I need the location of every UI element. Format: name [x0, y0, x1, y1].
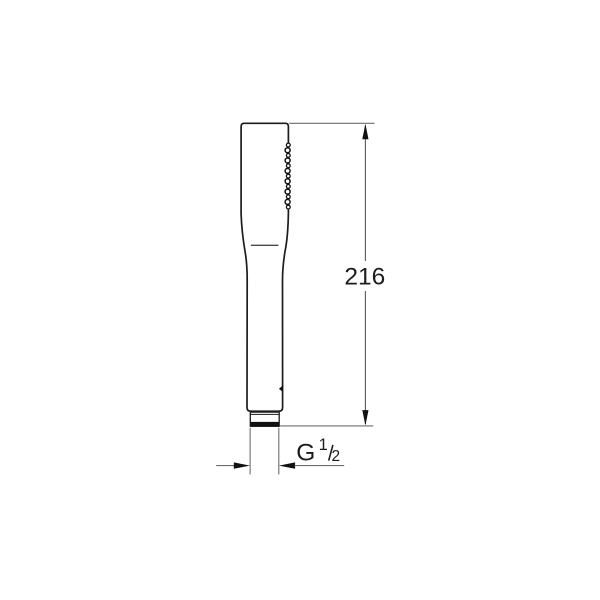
svg-text:2: 2: [332, 448, 341, 465]
svg-text:1: 1: [319, 436, 328, 454]
svg-text:216: 216: [344, 263, 385, 290]
svg-text:G: G: [296, 440, 315, 467]
